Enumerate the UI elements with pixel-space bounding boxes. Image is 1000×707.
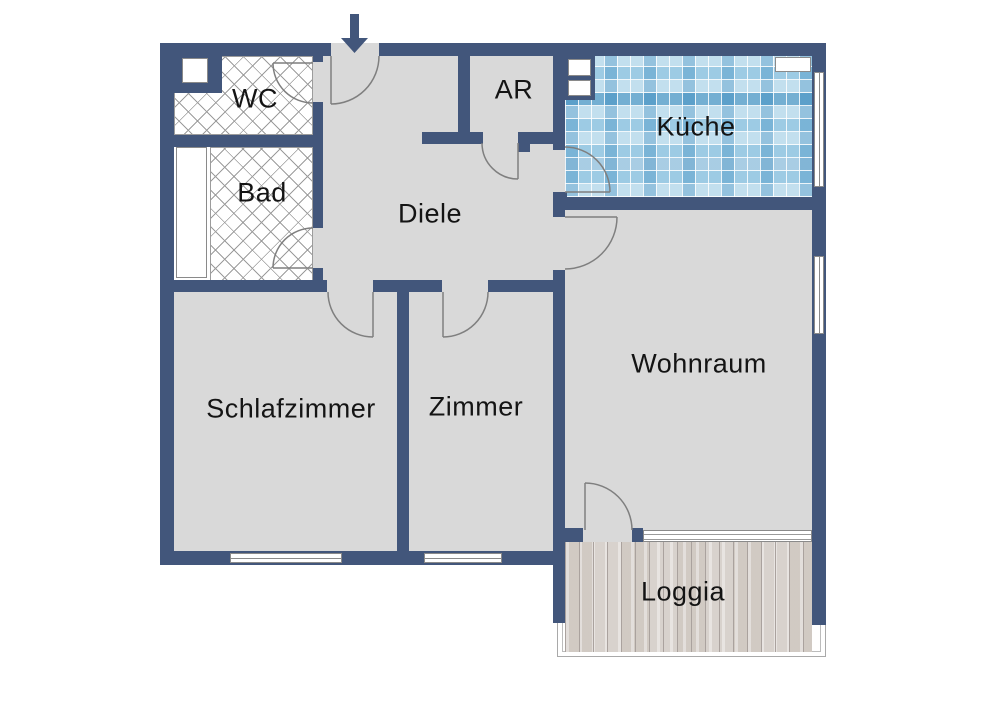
kueche-counter bbox=[775, 57, 811, 72]
shaft-kueche-lower bbox=[568, 80, 591, 96]
wall-wc-bad bbox=[174, 135, 313, 147]
room-label-kueche: Küche bbox=[656, 112, 735, 143]
wall-kueche-left bbox=[553, 43, 565, 150]
room-area-bad bbox=[210, 147, 313, 282]
window-zimmer bbox=[424, 553, 502, 563]
wall-ar-door-stub bbox=[518, 144, 530, 152]
floor-plan: WC Bad Diele AR Küche Schlafzimmer Zimme… bbox=[0, 0, 1000, 707]
shaft-wc bbox=[182, 58, 208, 83]
room-label-ar: AR bbox=[495, 75, 534, 106]
wall-wohnraum-left-lower bbox=[553, 270, 565, 623]
wall-exterior-left bbox=[160, 43, 174, 565]
room-label-schlafzimmer: Schlafzimmer bbox=[206, 394, 376, 425]
room-label-diele: Diele bbox=[398, 199, 462, 230]
wall-ar-bottom-left-stub bbox=[422, 132, 483, 144]
room-label-bad: Bad bbox=[237, 178, 287, 209]
wall-ar-bottom-right bbox=[518, 132, 557, 144]
wall-t-schlafzimmer-zimmer bbox=[373, 280, 442, 292]
wall-bad-schlafzimmer bbox=[174, 280, 327, 292]
window-wohnraum-right bbox=[814, 256, 824, 334]
entrance-opening bbox=[331, 43, 379, 56]
wall-kueche-bottom bbox=[553, 197, 812, 210]
shaft-kueche-upper bbox=[568, 59, 591, 76]
room-label-zimmer: Zimmer bbox=[429, 392, 523, 423]
wall-wc-diele-upper bbox=[313, 56, 323, 62]
room-label-wc: WC bbox=[232, 84, 278, 115]
bad-window-niche bbox=[176, 147, 207, 278]
wall-ar-left bbox=[458, 56, 470, 132]
wall-loggia-front-mid-block bbox=[632, 528, 643, 542]
window-loggia-front bbox=[643, 530, 812, 542]
wall-loggia-front-left-block bbox=[565, 528, 583, 542]
window-kueche-right bbox=[814, 72, 824, 187]
room-label-wohnraum: Wohnraum bbox=[631, 349, 767, 380]
wall-exterior-bottom bbox=[160, 551, 565, 565]
wall-wohnraum-left-upper bbox=[553, 210, 565, 217]
wall-exterior-top bbox=[160, 43, 826, 56]
wall-schlafzimmer-zimmer bbox=[397, 292, 409, 551]
window-schlafzimmer bbox=[230, 553, 342, 563]
room-label-loggia: Loggia bbox=[641, 577, 725, 608]
wall-diele-bottom-right bbox=[488, 280, 553, 292]
wall-wc-bad-diele bbox=[313, 102, 323, 228]
